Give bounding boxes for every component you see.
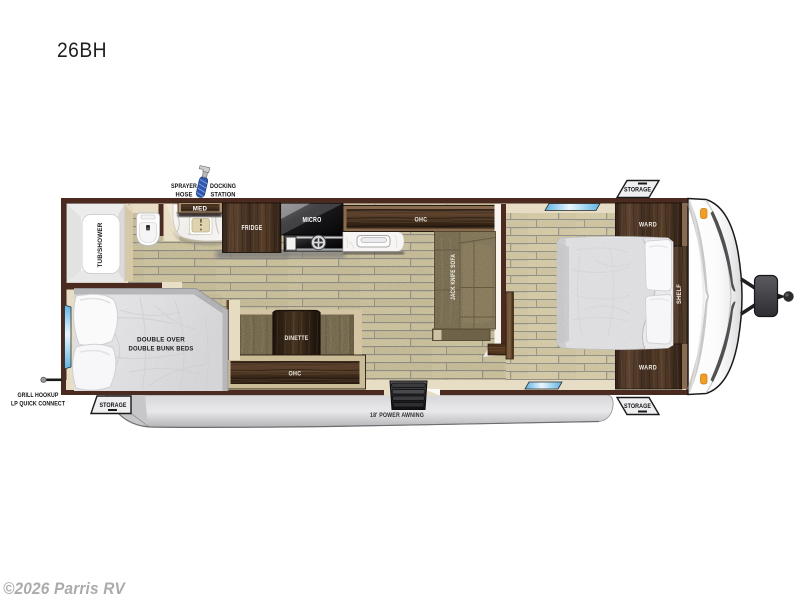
svg-text:LP QUICK CONNECT: LP QUICK CONNECT — [11, 401, 65, 408]
svg-text:GRILL HOOKUP: GRILL HOOKUP — [18, 392, 59, 399]
svg-text:DOUBLE BUNK BEDS: DOUBLE BUNK BEDS — [129, 346, 194, 353]
svg-text:STATION: STATION — [211, 192, 236, 199]
svg-text:WARD: WARD — [639, 365, 657, 372]
svg-text:MED: MED — [193, 206, 208, 213]
svg-text:©2026 Parris RV: ©2026 Parris RV — [3, 580, 127, 598]
svg-text:DINETTE: DINETTE — [285, 335, 309, 342]
svg-text:HOSE: HOSE — [176, 192, 193, 199]
svg-text:OHC: OHC — [415, 217, 428, 224]
svg-text:OHC: OHC — [289, 371, 302, 378]
svg-text:DOUBLE OVER: DOUBLE OVER — [137, 337, 185, 344]
svg-text:STORAGE: STORAGE — [624, 403, 651, 410]
svg-text:SHELF: SHELF — [676, 284, 683, 304]
svg-text:18' POWER AWNING: 18' POWER AWNING — [370, 412, 424, 419]
svg-text:WARD: WARD — [639, 222, 657, 229]
svg-text:DOCKING: DOCKING — [210, 183, 236, 190]
svg-text:MICRO: MICRO — [303, 217, 322, 224]
svg-text:STORAGE: STORAGE — [100, 402, 127, 409]
svg-text:26BH: 26BH — [57, 39, 107, 62]
svg-text:TUB/SHOWER: TUB/SHOWER — [97, 222, 104, 267]
svg-text:FRIDGE: FRIDGE — [242, 225, 263, 232]
svg-text:SPRAYER: SPRAYER — [171, 183, 197, 190]
svg-text:STORAGE: STORAGE — [624, 187, 651, 194]
svg-text:JACK KNIFE SOFA: JACK KNIFE SOFA — [451, 254, 457, 300]
